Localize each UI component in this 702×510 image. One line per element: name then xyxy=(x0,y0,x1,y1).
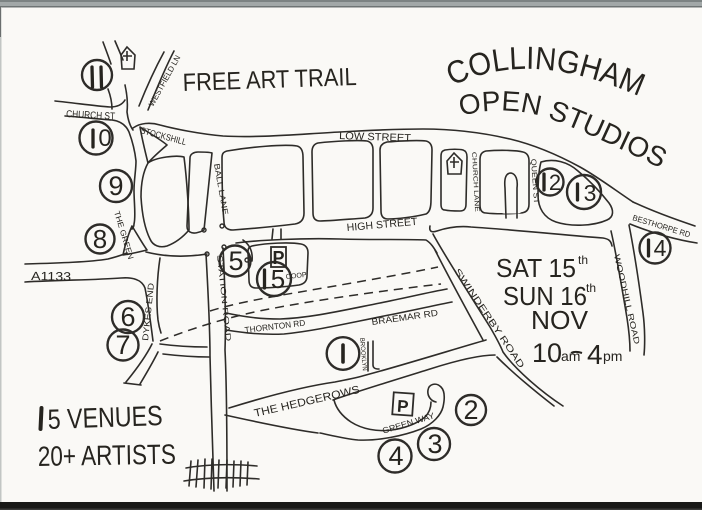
svg-text:th: th xyxy=(578,253,588,267)
svg-text:SAT 15: SAT 15 xyxy=(496,253,576,283)
svg-text:3: 3 xyxy=(427,429,442,459)
svg-text:6: 6 xyxy=(120,302,135,332)
svg-text:4: 4 xyxy=(587,339,603,370)
svg-text:0: 0 xyxy=(98,125,111,152)
svg-text:am: am xyxy=(561,348,580,364)
svg-text:P: P xyxy=(397,397,410,417)
svg-text:th: th xyxy=(586,281,596,295)
svg-text:2: 2 xyxy=(549,170,561,195)
svg-text:20+ ARTISTS: 20+ ARTISTS xyxy=(38,439,177,472)
svg-text:pm: pm xyxy=(603,348,622,364)
svg-text:10: 10 xyxy=(532,338,562,368)
svg-text:7: 7 xyxy=(115,330,130,360)
svg-text:A1133: A1133 xyxy=(31,269,72,284)
svg-text:NOV: NOV xyxy=(531,305,589,335)
svg-text:8: 8 xyxy=(93,224,107,254)
svg-text:5: 5 xyxy=(271,264,285,294)
svg-text:9: 9 xyxy=(108,171,123,201)
svg-text:3: 3 xyxy=(584,180,597,206)
svg-text:4: 4 xyxy=(654,235,667,261)
svg-text:LOW STREET: LOW STREET xyxy=(339,130,412,145)
svg-text:5 VENUES: 5 VENUES xyxy=(47,400,163,435)
svg-text:2: 2 xyxy=(463,395,478,425)
svg-text:5: 5 xyxy=(228,246,243,276)
svg-text:4: 4 xyxy=(388,441,403,471)
